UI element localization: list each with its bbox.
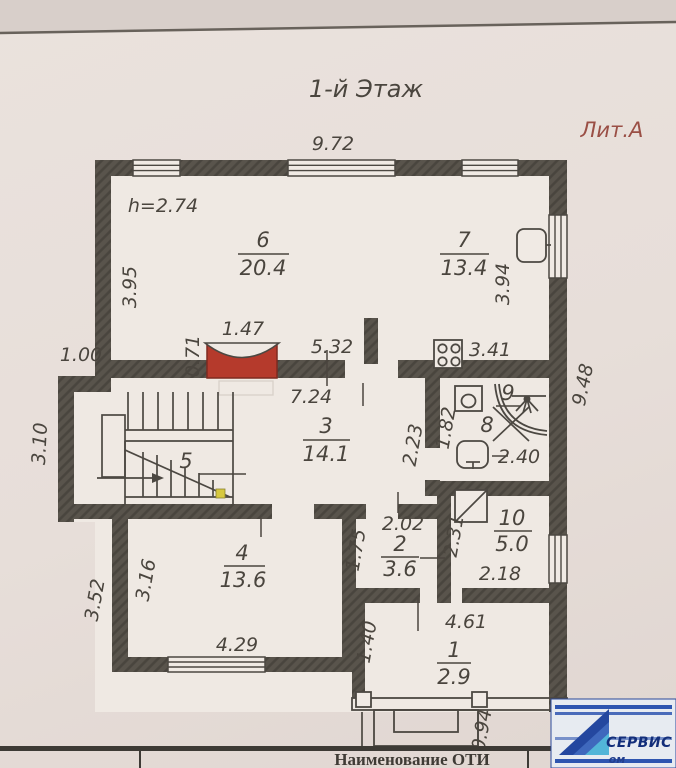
dim-room6-left: 3.95	[119, 266, 141, 308]
floor-plan-svg: 1-й Этаж Лит.А h=2.74 9.72 3.95 3.94 1.4…	[0, 0, 676, 768]
room-7-number: 7	[457, 228, 471, 252]
window	[462, 160, 518, 176]
dim-bath-length: 2.40	[498, 446, 540, 468]
stair-marker	[216, 489, 225, 498]
room-3-number: 3	[319, 414, 332, 438]
room-4-number: 4	[235, 541, 248, 565]
room-3-area: 14.1	[303, 442, 350, 466]
room-10-area: 5.0	[495, 532, 528, 556]
kitchen-stove-icon	[434, 340, 462, 368]
window	[549, 215, 567, 278]
dim-top-width: 9.72	[312, 133, 354, 155]
dim-porch: 0.94	[468, 707, 497, 752]
room-7-area: 13.4	[441, 256, 488, 280]
dim-kitchen: 3.41	[469, 339, 511, 361]
dim-right-height: 9.48	[568, 362, 598, 408]
room-10-number: 10	[499, 506, 526, 530]
dim-bay-offset: 1.00	[60, 344, 102, 366]
dim-hall-width: 7.24	[290, 386, 332, 408]
dim-room10-bottom: 2.18	[479, 563, 521, 585]
room-2-area: 3.6	[383, 557, 416, 581]
room-2-number: 2	[393, 532, 406, 556]
room-9-number: 9	[501, 381, 514, 405]
dim-bay-height: 3.10	[28, 422, 52, 465]
toilet-icon	[457, 441, 488, 469]
room-1-number: 1	[447, 638, 460, 662]
dim-room1-top: 4.61	[445, 611, 487, 633]
floor-plan-sheet: 1-й Этаж Лит.А h=2.74 9.72 3.95 3.94 1.4…	[0, 0, 676, 768]
room-4-area: 13.6	[220, 568, 267, 592]
room-1-area: 2.9	[437, 665, 470, 689]
room-8-label: 8	[480, 413, 493, 437]
dim-stove-depth: 0.71	[182, 335, 204, 377]
room-6-area: 20.4	[240, 256, 287, 280]
logo-subtext: ом	[609, 753, 626, 766]
room-5-number: 5	[179, 449, 192, 473]
dim-room4-bottom: 4.29	[216, 634, 258, 656]
logo-text: СЕРВИС	[606, 735, 672, 751]
window	[168, 657, 265, 672]
porch-step-inner	[394, 710, 458, 732]
room-6-number: 6	[256, 228, 269, 252]
photo-edge	[0, 0, 676, 33]
room-8-number: 8	[480, 413, 493, 437]
ceiling-height-label: h=2.74	[128, 195, 198, 217]
agency-logo: СЕРВИС ом	[551, 699, 676, 768]
boiler-icon	[517, 229, 551, 262]
dim-stove-width: 1.47	[222, 318, 264, 340]
sink-icon	[455, 386, 482, 411]
page-title: 1-й Этаж	[309, 75, 424, 103]
window	[133, 160, 180, 176]
window	[288, 160, 395, 176]
porch-step-outer	[374, 710, 478, 746]
dim-mid-wall: 5.32	[311, 336, 353, 358]
oti-label: Наименование ОТИ	[334, 750, 489, 768]
liter-label: Лит.А	[580, 118, 644, 142]
window	[549, 535, 567, 583]
dim-room7-right: 3.94	[492, 263, 514, 305]
